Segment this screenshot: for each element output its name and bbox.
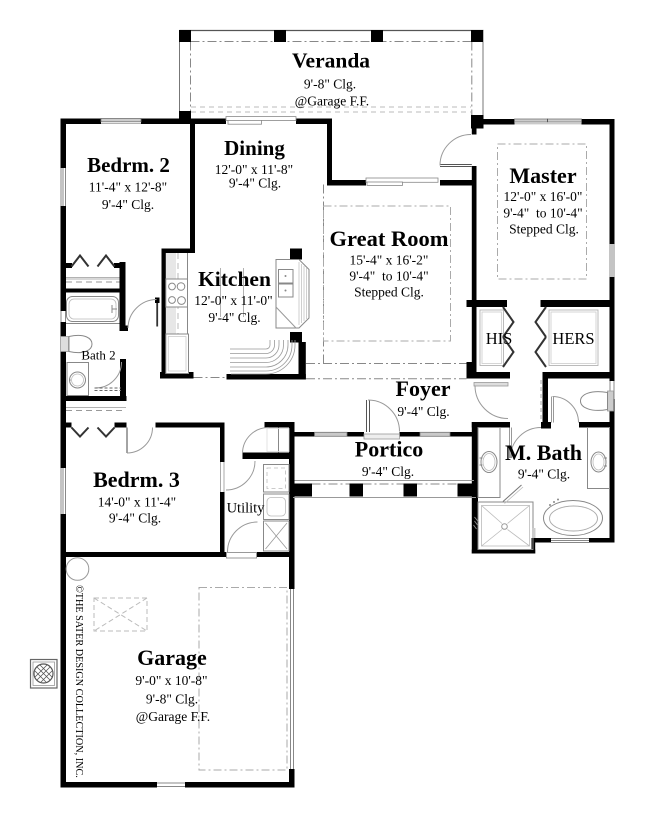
svg-text:9'-8" Clg.: 9'-8" Clg.: [304, 77, 356, 92]
svg-text:9'-4" Clg.: 9'-4" Clg.: [229, 176, 281, 191]
svg-text:Bedrm. 3: Bedrm. 3: [93, 467, 180, 492]
svg-text:Master: Master: [509, 163, 576, 188]
svg-text:9'-0" x 10'-8": 9'-0" x 10'-8": [135, 673, 207, 688]
svg-text:9'-8" Clg.: 9'-8" Clg.: [146, 692, 198, 707]
svg-text:HIS: HIS: [486, 329, 513, 348]
svg-text:9'-4" Clg.: 9'-4" Clg.: [109, 511, 161, 526]
svg-text:9'-4" Clg.: 9'-4" Clg.: [397, 404, 449, 419]
svg-text:Portico: Portico: [355, 436, 423, 461]
svg-text:12'-0" x 16'-0": 12'-0" x 16'-0": [504, 189, 583, 204]
svg-text:HERS: HERS: [552, 329, 594, 348]
svg-text:15'-4" x 16'-2": 15'-4" x 16'-2": [350, 253, 429, 268]
svg-text:14'-0" x 11'-4": 14'-0" x 11'-4": [98, 495, 176, 510]
svg-text:9'-4" Clg.: 9'-4" Clg.: [362, 464, 414, 479]
svg-text:Foyer: Foyer: [396, 376, 451, 401]
svg-text:Utility: Utility: [227, 500, 266, 516]
svg-text:9'-4" to 10'-4": 9'-4" to 10'-4": [349, 269, 428, 284]
svg-text:©THE SATER DESIGN COLLECTION,: ©THE SATER DESIGN COLLECTION, INC.: [73, 585, 84, 778]
svg-text:Bath 2: Bath 2: [81, 348, 115, 363]
svg-text:Garage: Garage: [137, 645, 207, 670]
svg-text:9'-4" to 10'-4": 9'-4" to 10'-4": [503, 206, 582, 221]
svg-text:12'-0" x 11'-0": 12'-0" x 11'-0": [194, 293, 272, 308]
svg-text:Kitchen: Kitchen: [198, 267, 271, 291]
svg-text:9'-4" Clg.: 9'-4" Clg.: [208, 310, 260, 325]
svg-text:Stepped Clg.: Stepped Clg.: [354, 285, 424, 300]
svg-text:11'-4" x 12'-8": 11'-4" x 12'-8": [89, 180, 167, 195]
svg-text:9'-4" Clg.: 9'-4" Clg.: [102, 197, 154, 212]
svg-text:Great Room: Great Room: [330, 226, 449, 251]
svg-text:9'-4" Clg.: 9'-4" Clg.: [518, 467, 570, 482]
svg-text:M. Bath: M. Bath: [505, 440, 582, 465]
svg-text:@Garage F.F.: @Garage F.F.: [295, 94, 369, 109]
svg-text:Bedrm. 2: Bedrm. 2: [87, 153, 170, 177]
svg-text:Dining: Dining: [224, 136, 285, 160]
svg-text:Stepped Clg.: Stepped Clg.: [509, 222, 579, 237]
svg-text:Veranda: Veranda: [292, 49, 370, 73]
svg-text:@Garage F.F.: @Garage F.F.: [136, 709, 210, 724]
